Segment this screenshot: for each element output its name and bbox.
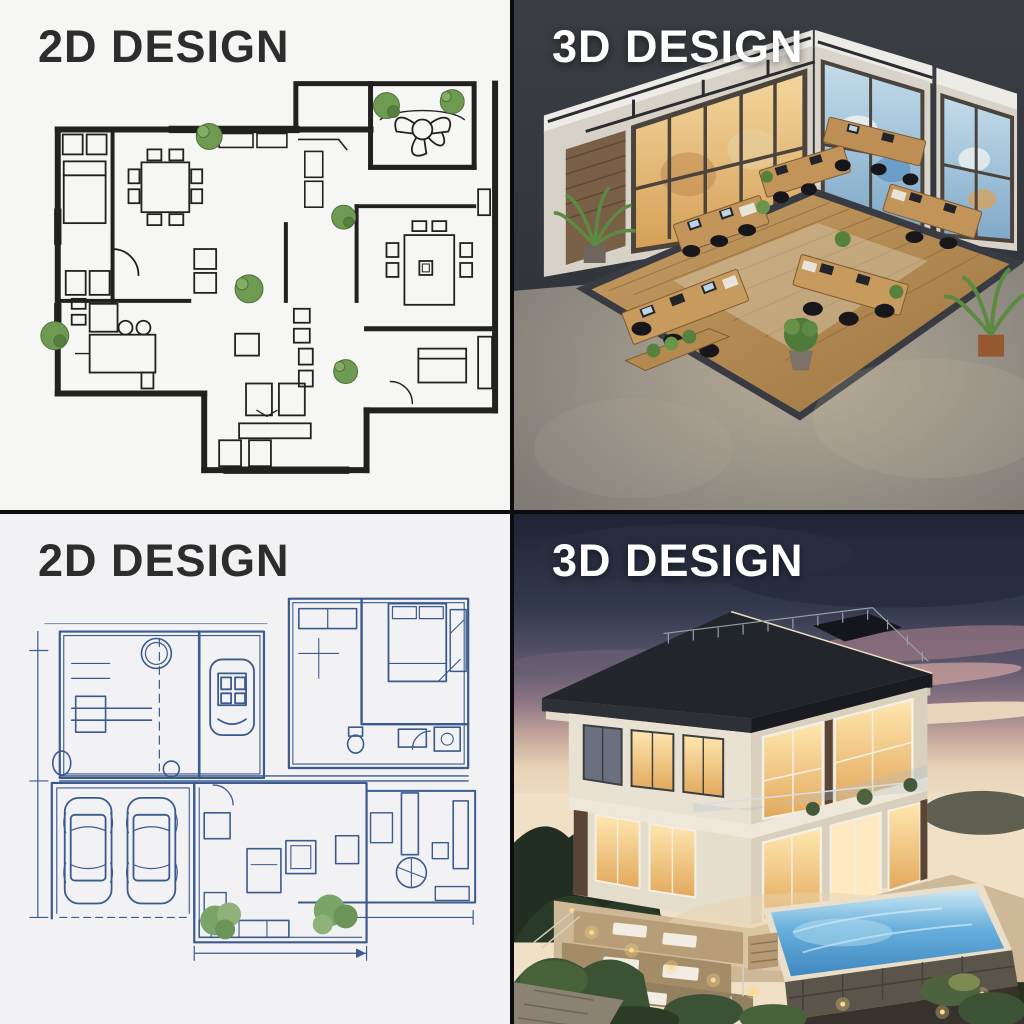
- desk-plant: [756, 200, 770, 214]
- dining-table: [128, 149, 202, 225]
- suite-left: [72, 299, 156, 389]
- garage-car: [64, 798, 113, 904]
- blueprint-2d-plan: [0, 514, 510, 1024]
- comparison-grid: 2D DESIGN: [0, 0, 1024, 1024]
- bathroom: [348, 727, 461, 753]
- kitchen-island: [386, 221, 472, 305]
- panel-title-2d-bottom: 2D DESIGN: [38, 536, 290, 586]
- floor-plan-2d-sketch: [0, 0, 510, 510]
- light-pool: [534, 398, 733, 498]
- bush: [200, 902, 241, 939]
- utility-car: [210, 659, 254, 735]
- bedroom-block: [289, 599, 468, 768]
- panel-2d-sketch: 2D DESIGN: [0, 0, 510, 510]
- outer-walls: [58, 84, 495, 470]
- tv-room: [219, 349, 313, 467]
- top-counters: [219, 133, 347, 207]
- panel-3d-villa: 3D DESIGN: [514, 514, 1024, 1024]
- office-3d-render: [514, 0, 1024, 510]
- panel-title-3d-bottom: 3D DESIGN: [552, 536, 804, 586]
- bedroom-right: [390, 337, 492, 404]
- panel-title-2d-top: 2D DESIGN: [38, 22, 290, 72]
- closets-and-bed: [63, 134, 139, 294]
- bush: [313, 895, 358, 935]
- panel-2d-blueprint: 2D DESIGN: [0, 514, 510, 1024]
- balcony-plant: [806, 802, 820, 816]
- house-3d-render: [514, 514, 1024, 1024]
- interior-walls: [58, 129, 495, 328]
- panel-title-3d-top: 3D DESIGN: [552, 22, 804, 72]
- garage-car: [127, 798, 178, 904]
- blueprint-bushes: [200, 895, 357, 940]
- office-room: [299, 791, 475, 903]
- panel-3d-office: 3D DESIGN: [514, 0, 1024, 510]
- balcony-plant: [903, 778, 917, 792]
- balcony-plant: [857, 789, 873, 805]
- desk-plant: [835, 231, 851, 247]
- garage: [52, 783, 194, 918]
